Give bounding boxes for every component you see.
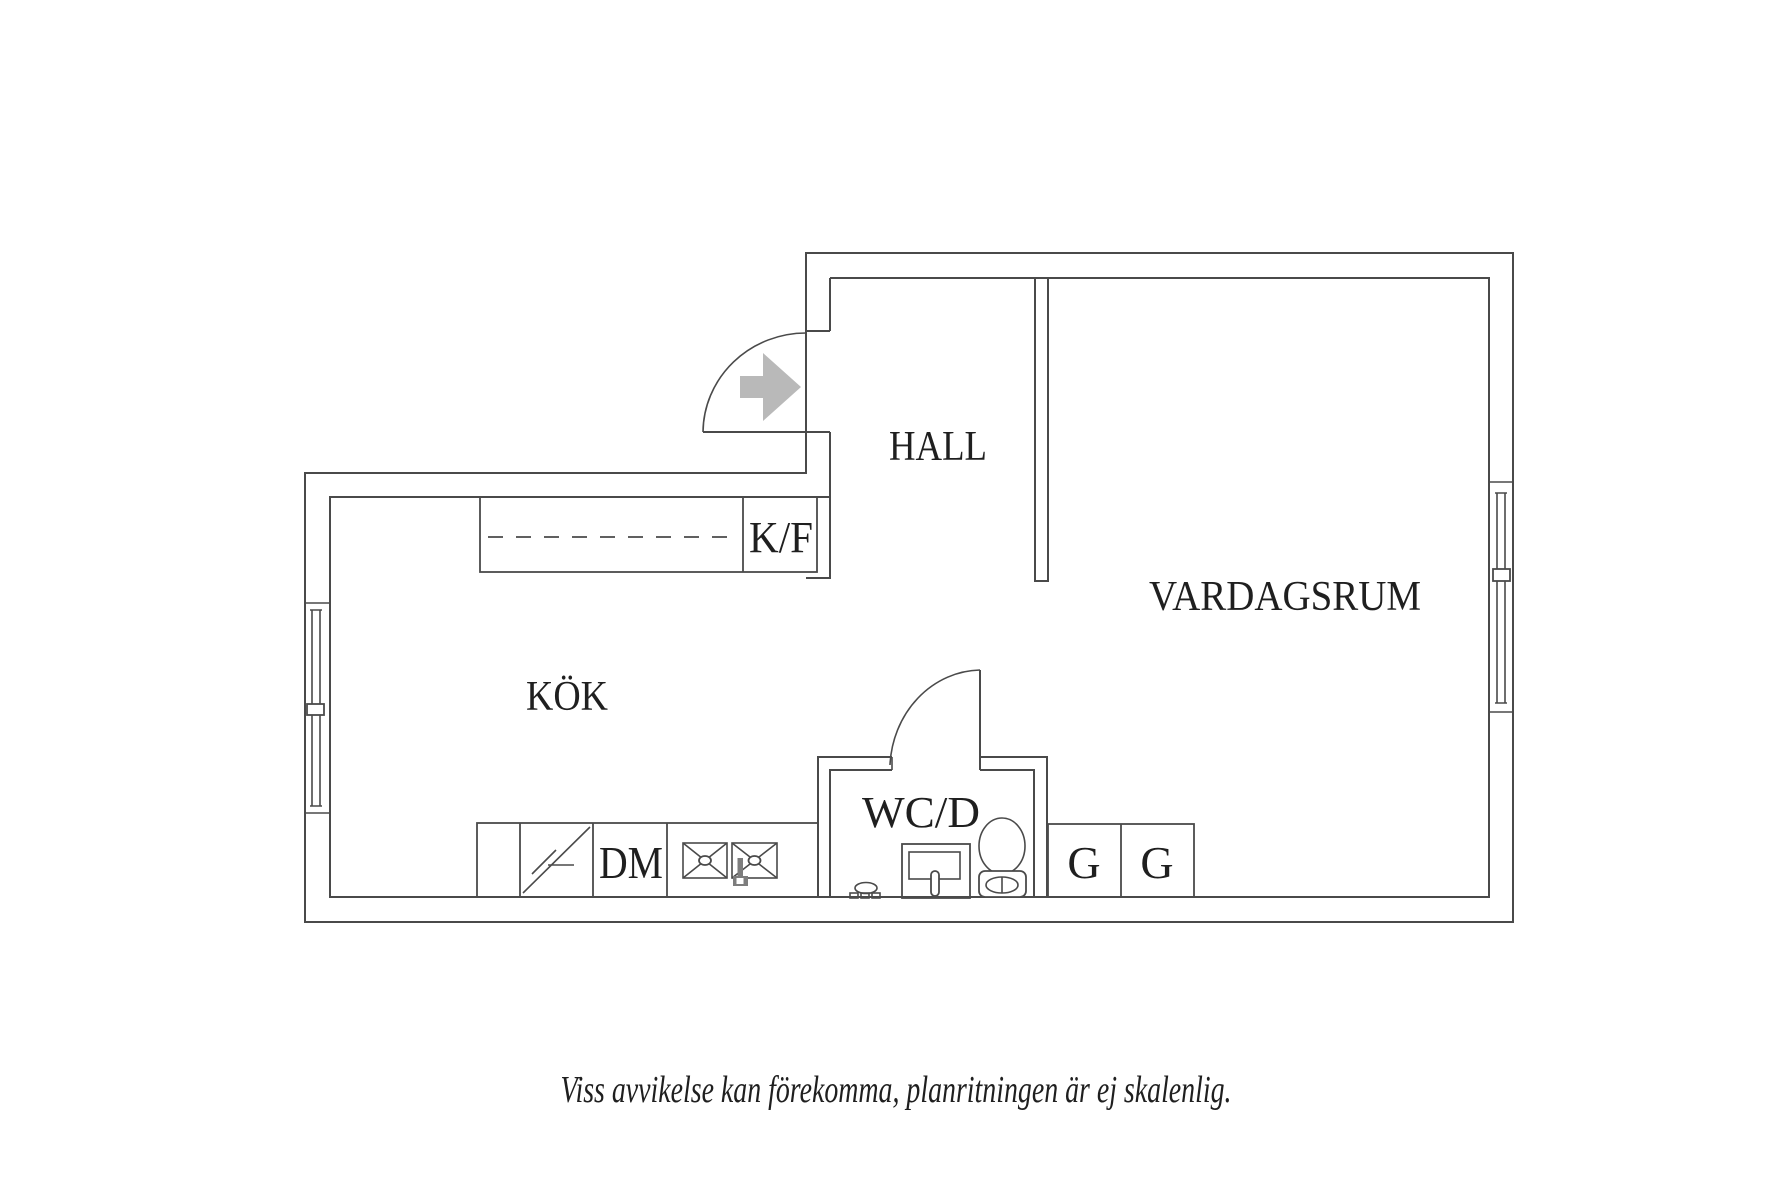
double-sink (683, 843, 777, 886)
bathroom-door (890, 670, 980, 770)
window-right-panes (1495, 493, 1507, 703)
label-dishwasher: DM (599, 837, 663, 888)
wash-basin (850, 883, 880, 899)
basin-foot-3 (872, 893, 880, 898)
room-label-kok: KÖK (526, 674, 608, 720)
stove-diagonal (523, 827, 590, 893)
room-label-wcd: WC/D (862, 788, 980, 837)
window-right-mullion (1493, 569, 1510, 581)
room-label-hall: HALL (889, 424, 987, 470)
basin-foot-2 (861, 893, 869, 898)
toilet-bowl (979, 818, 1025, 874)
sink-drain-left (699, 856, 711, 865)
label-wardrobe-1: G (1067, 837, 1100, 888)
hall-livingroom-divider-wall (1035, 278, 1048, 581)
bathroom-door-reveals (892, 757, 980, 770)
label-fridge-freezer: K/F (749, 513, 813, 562)
faucet-base-notch (737, 878, 744, 884)
washing-machine (902, 844, 970, 898)
floor-plan-page: HALL VARDAGSRUM KÖK WC/D K/F DM G G Viss… (0, 0, 1780, 1187)
entry-arrow-icon (740, 353, 801, 421)
stove-symbol (523, 827, 590, 893)
window-right (1489, 482, 1513, 712)
floor-plan-drawing: HALL VARDAGSRUM KÖK WC/D K/F DM G G Viss… (0, 0, 1780, 1187)
window-left-mullion (307, 704, 324, 715)
basin-top (855, 883, 877, 894)
toilet (979, 818, 1026, 897)
room-label-vardagsrum: VARDAGSRUM (1149, 574, 1421, 620)
washing-machine-handle (931, 871, 939, 896)
disclaimer-caption: Viss avvikelse kan förekomma, planritnin… (561, 1069, 1232, 1111)
window-left (305, 603, 330, 813)
sink-drain-right (749, 856, 761, 865)
bathroom-door-swing-arc (890, 670, 980, 765)
label-wardrobe-2: G (1140, 837, 1173, 888)
basin-foot-1 (850, 893, 858, 898)
window-right-sills (1489, 482, 1513, 712)
